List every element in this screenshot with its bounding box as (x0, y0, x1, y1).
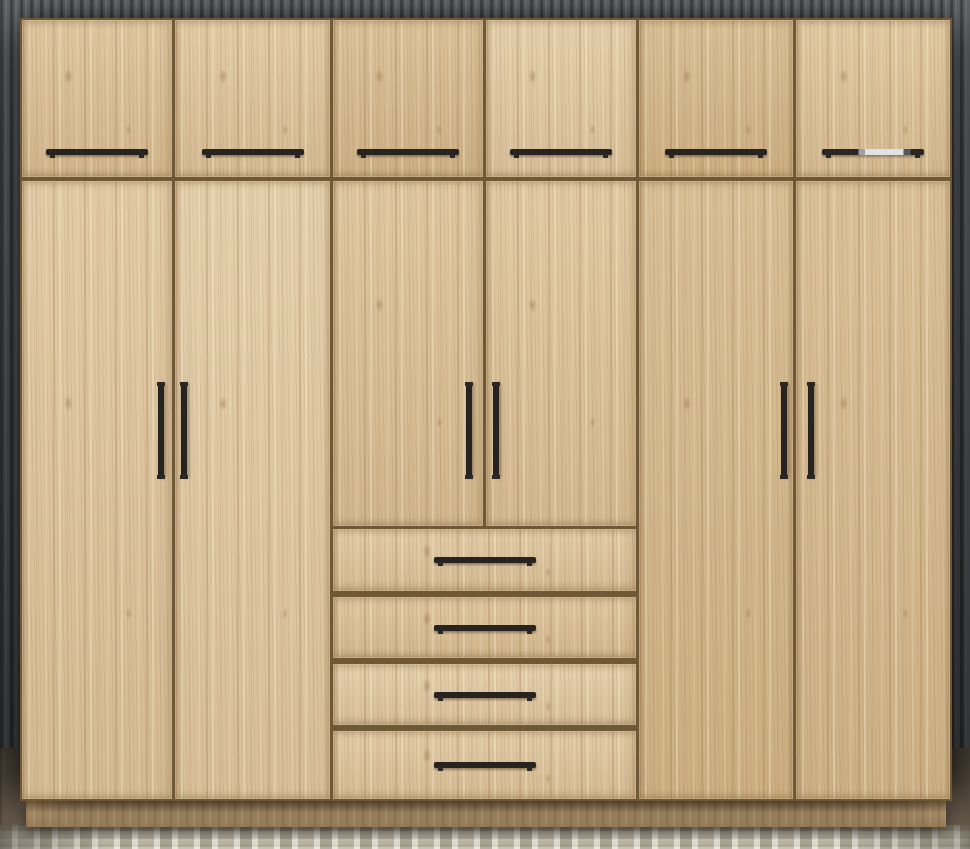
door-handle (493, 383, 499, 478)
top-cabinet-door-6 (796, 20, 950, 177)
drawer-handle (434, 557, 536, 563)
drawer-4 (333, 731, 636, 799)
door-handle (808, 383, 814, 478)
door-handle (357, 149, 459, 155)
tall-door-left-2 (175, 181, 330, 799)
wardrobe-cabinet (20, 18, 952, 801)
drawer-1 (333, 529, 636, 591)
door-handle (510, 149, 612, 155)
half-door-center-left (333, 181, 483, 526)
tall-door-right-2 (796, 181, 950, 799)
door-handle (202, 149, 304, 155)
drawer-3 (333, 664, 636, 725)
tall-door-left-1 (22, 181, 172, 799)
top-cabinet-door-4 (486, 20, 636, 177)
door-handle-silver-accent (822, 149, 924, 155)
top-cabinet-door-5 (639, 20, 793, 177)
top-cabinet-door-2 (175, 20, 330, 177)
area-rug (0, 825, 970, 849)
bedroom-scene (0, 0, 970, 849)
door-handle (46, 149, 148, 155)
door-handle (466, 383, 472, 478)
top-cabinet-door-1 (22, 20, 172, 177)
drawer-handle (434, 692, 536, 698)
half-door-center-right (486, 181, 636, 526)
top-cabinet-door-3 (333, 20, 483, 177)
drawer-2 (333, 597, 636, 658)
tall-door-right-1 (639, 181, 793, 799)
drawer-handle (434, 625, 536, 631)
door-handle (181, 383, 187, 478)
wardrobe-plinth (26, 801, 946, 827)
door-handle (781, 383, 787, 478)
drawer-handle (434, 762, 536, 768)
door-handle (665, 149, 767, 155)
door-handle (158, 383, 164, 478)
